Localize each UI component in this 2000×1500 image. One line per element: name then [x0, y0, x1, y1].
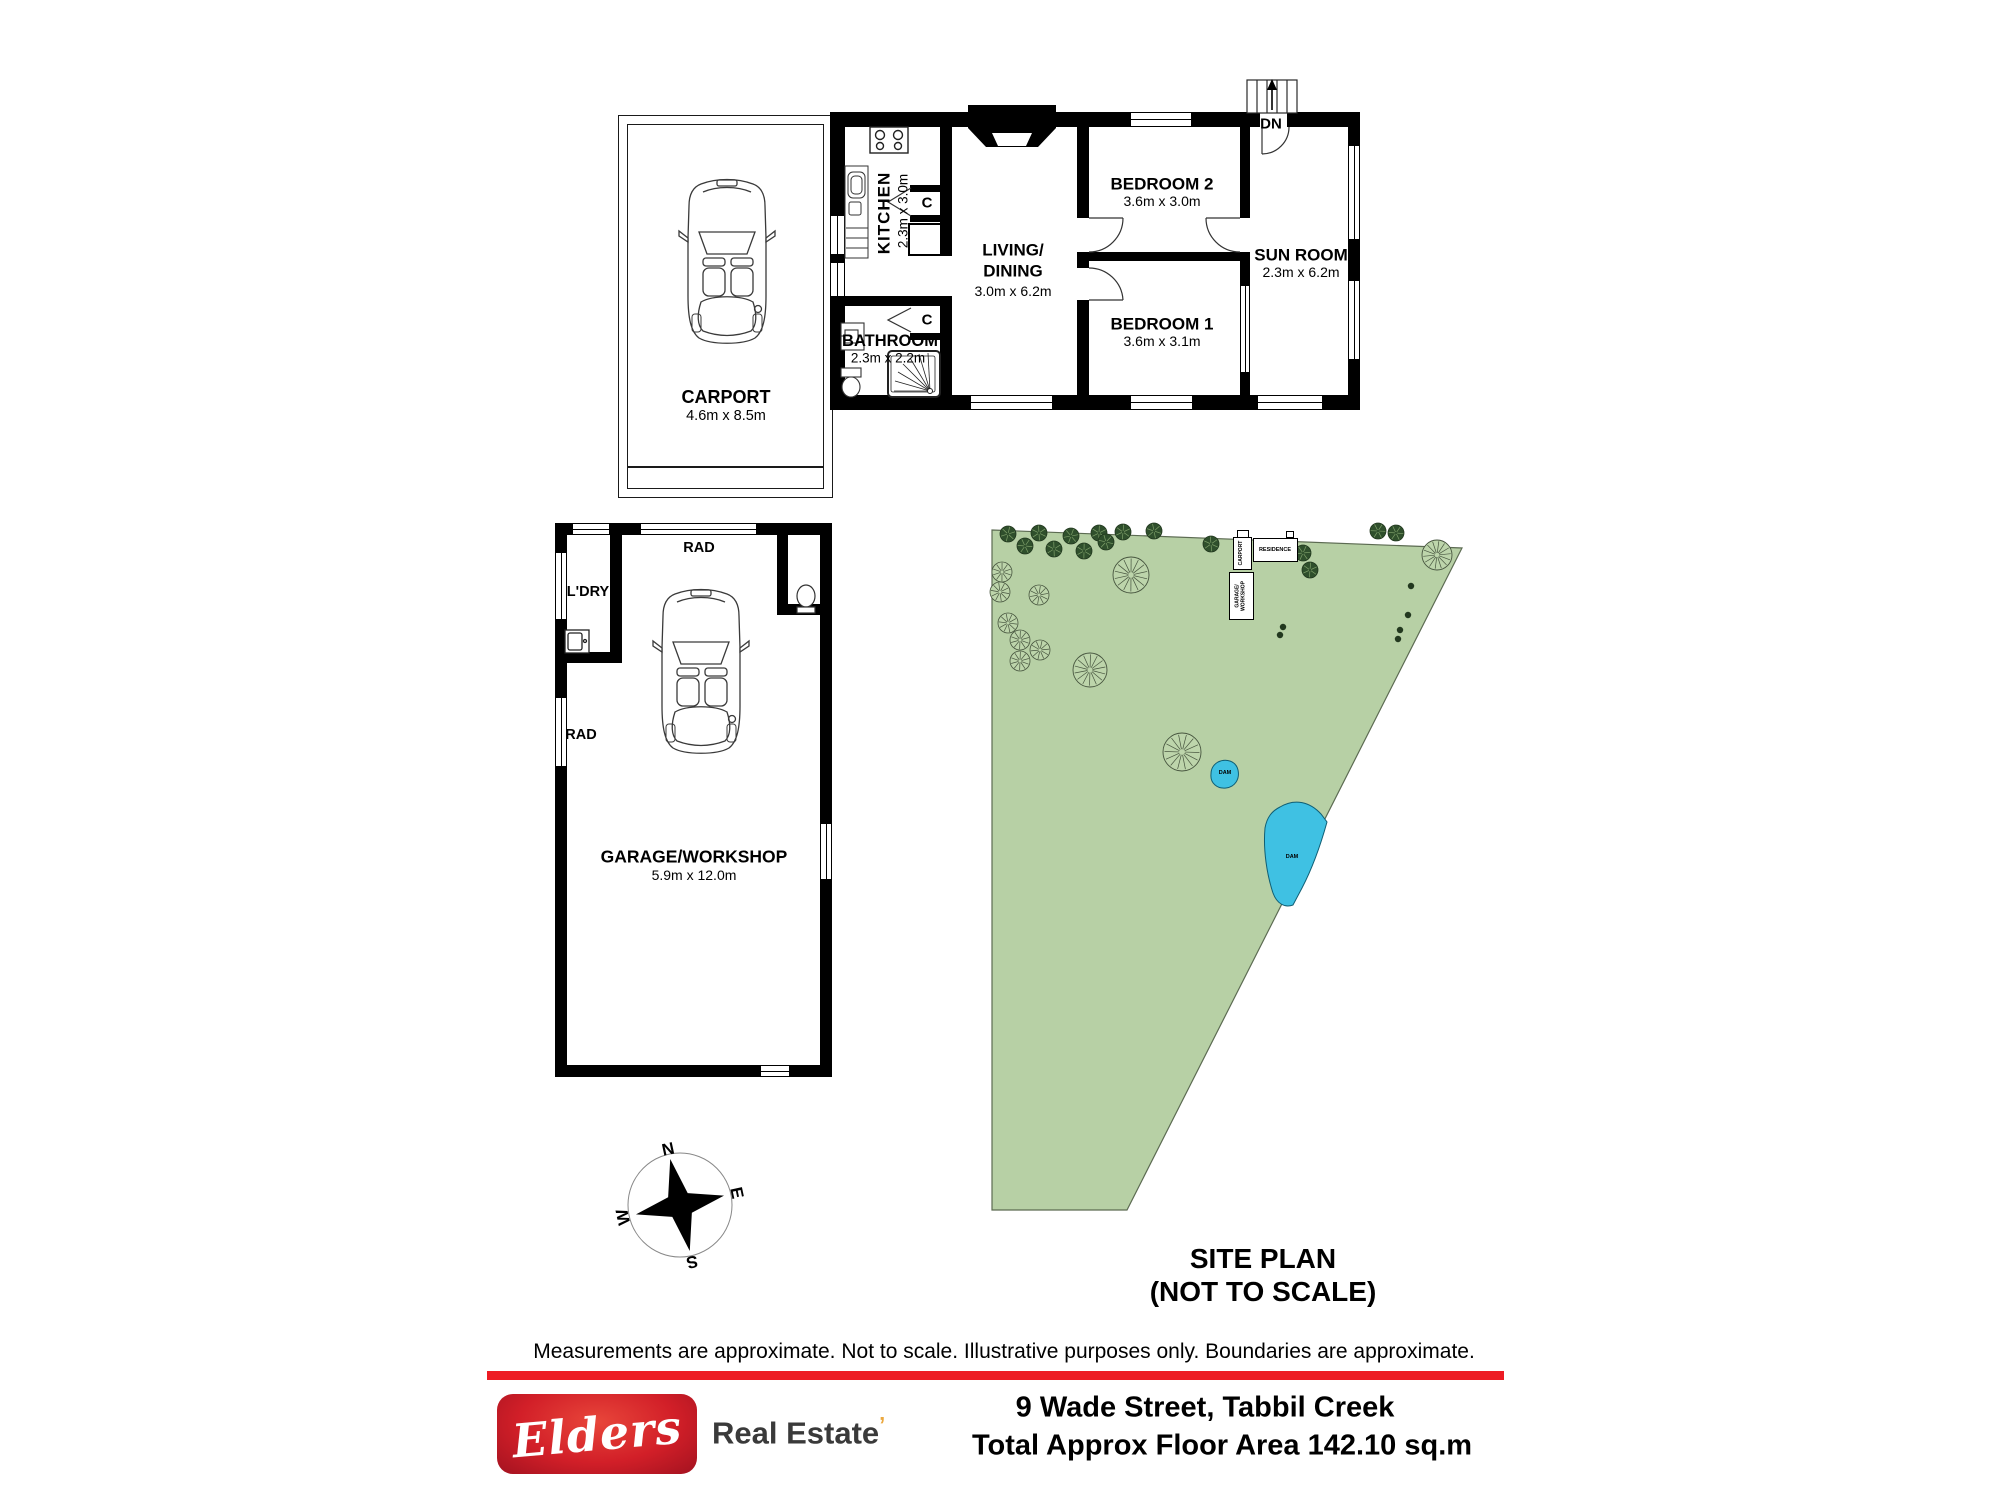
wall	[1077, 300, 1089, 395]
site-garage-label-line2: WORKSHOP	[1240, 581, 1246, 611]
tree-small	[1203, 536, 1219, 552]
room-label-sunroom: SUN ROOM	[1254, 247, 1348, 264]
floorplan-page: CARPORT 4.6m x 8.5m KITCHEN 2.3m x 3.0m …	[0, 0, 2000, 1500]
window	[572, 523, 610, 535]
room-label-bedroom1: BEDROOM 1	[1111, 316, 1214, 333]
tree-small	[1302, 562, 1318, 578]
shrub-dot	[1397, 627, 1403, 633]
window	[640, 523, 757, 535]
shrub-dot	[1395, 636, 1401, 642]
site-plan-title: SITE PLAN	[1190, 1245, 1336, 1273]
garage-car	[653, 590, 749, 754]
wall	[940, 306, 952, 395]
wall	[830, 112, 845, 215]
wall	[1240, 253, 1250, 285]
tree-small	[1146, 523, 1162, 539]
tree-small	[1017, 538, 1033, 554]
wall	[555, 1065, 760, 1077]
shrub-dot	[1405, 612, 1411, 618]
closet-door-hall	[888, 308, 911, 332]
brand-suffix-text: Real Estate	[712, 1416, 879, 1451]
shrub-dot	[1408, 583, 1414, 589]
tree-small	[1031, 525, 1047, 541]
window	[1130, 395, 1193, 410]
wall	[830, 255, 845, 262]
floor-area-line: Total Approx Floor Area 142.10 sq.m	[972, 1430, 1472, 1463]
elders-logo-text: Elders	[510, 1400, 684, 1469]
compass-w: W	[612, 1206, 634, 1227]
kitchen-sink	[845, 166, 868, 258]
wall	[1348, 112, 1360, 145]
site-garage-label: GARAGE/ WORKSHOP	[1235, 581, 1247, 611]
dam-label-large: DAM	[1286, 854, 1299, 860]
window	[970, 395, 1053, 410]
window	[1348, 145, 1360, 240]
room-label-living-2: DINING	[983, 263, 1043, 280]
laundry-label: L'DRY	[567, 585, 609, 600]
wall	[555, 523, 567, 552]
stairs-down-label: DN	[1260, 117, 1282, 132]
wall	[790, 1065, 832, 1077]
wall	[910, 215, 942, 222]
wall	[555, 767, 567, 1077]
site-notch	[1286, 531, 1294, 538]
shrub-dot	[1277, 632, 1283, 638]
compass-e: E	[726, 1185, 747, 1200]
wall	[777, 604, 832, 615]
room-dims-bedroom1: 3.6m x 3.1m	[1123, 334, 1200, 348]
brand-gold-mark: ’	[879, 1412, 885, 1437]
room-label-living-1: LIVING/	[982, 242, 1043, 259]
compass-s: S	[685, 1251, 700, 1272]
window	[1257, 395, 1323, 410]
wall	[830, 297, 845, 410]
tree-small	[1063, 528, 1079, 544]
site-boundary	[992, 530, 1462, 1210]
site-plan	[980, 520, 1490, 1230]
staircase	[1247, 79, 1297, 113]
window	[1130, 112, 1192, 127]
site-plan-subtitle: (NOT TO SCALE)	[1150, 1278, 1377, 1306]
window	[830, 262, 845, 297]
site-notch	[1237, 530, 1249, 538]
stove	[870, 127, 908, 153]
shrub-dot	[1280, 624, 1286, 630]
tree-large	[1073, 653, 1107, 687]
tree-medium	[998, 613, 1018, 633]
window	[760, 1065, 790, 1077]
window	[1348, 280, 1360, 360]
wall	[1240, 115, 1250, 218]
wall	[1348, 360, 1360, 410]
tree-small	[1115, 524, 1131, 540]
room-label-kitchen: KITCHEN	[876, 172, 893, 255]
window	[555, 552, 567, 620]
site-residence-label: RESIDENCE	[1259, 547, 1291, 553]
carport-outline-inner	[627, 124, 824, 489]
site-carport-label: CARPORT	[1239, 541, 1245, 566]
tree-large	[1163, 733, 1201, 771]
tree-medium	[1029, 585, 1049, 605]
sunroom-bedroom2-door	[1206, 218, 1240, 252]
brand-suffix: Real Estate’	[712, 1412, 885, 1451]
wall	[1348, 240, 1360, 280]
wall	[555, 652, 622, 663]
room-dims-garage: 5.9m x 12.0m	[652, 868, 737, 882]
disclaimer-text: Measurements are approximate. Not to sca…	[533, 1340, 1475, 1364]
tree-medium	[1030, 640, 1050, 660]
wall	[777, 523, 788, 615]
wall	[830, 296, 952, 306]
rad-label-left: RAD	[565, 728, 596, 743]
wall	[1077, 252, 1250, 261]
compass: N E S W	[600, 1126, 760, 1285]
wall	[1053, 395, 1130, 410]
room-dims-sunroom: 2.3m x 6.2m	[1262, 265, 1339, 279]
closet-label-hall: C	[922, 313, 933, 328]
compass-n: N	[660, 1139, 676, 1160]
tree-small	[1098, 534, 1114, 550]
wall	[1077, 123, 1089, 218]
wall	[820, 523, 832, 823]
tree-large	[1422, 540, 1452, 570]
elders-logo: Elders	[497, 1394, 697, 1474]
carport-divider-line	[627, 466, 824, 468]
window	[1240, 285, 1250, 373]
rad-label-top: RAD	[683, 541, 714, 556]
bedroom1-door	[1089, 268, 1123, 300]
room-label-bathroom: BATHROOM	[842, 333, 938, 350]
room-label-carport: CARPORT	[682, 388, 771, 406]
tree-small	[1000, 526, 1016, 542]
dam-label-small: DAM	[1219, 770, 1232, 776]
wall	[910, 185, 942, 192]
brand-red-bar	[487, 1371, 1504, 1380]
fridge	[908, 223, 942, 256]
wall	[830, 395, 970, 410]
room-label-bedroom2: BEDROOM 2	[1111, 176, 1214, 193]
room-dims-bathroom: 2.3m x 2.2m	[851, 351, 925, 365]
wall	[610, 523, 622, 663]
room-dims-living: 3.0m x 6.2m	[974, 284, 1051, 298]
address-line: 9 Wade Street, Tabbil Creek	[1016, 1392, 1395, 1425]
bedroom2-door	[1089, 218, 1123, 252]
room-dims-carport: 4.6m x 8.5m	[686, 409, 766, 424]
tree-medium	[990, 582, 1010, 602]
room-dims-bedroom2: 3.6m x 3.0m	[1123, 194, 1200, 208]
room-dims-kitchen: 2.3m x 3.0m	[896, 174, 910, 248]
compass-star	[626, 1150, 734, 1261]
wall	[1240, 373, 1250, 403]
tree-small	[1388, 525, 1404, 541]
window	[820, 823, 832, 880]
laundry-tub	[565, 630, 589, 653]
window	[830, 215, 845, 255]
closet-label-kitchen: C	[922, 196, 933, 211]
room-label-garage: GARAGE/WORKSHOP	[601, 848, 788, 866]
wall	[820, 880, 832, 1077]
